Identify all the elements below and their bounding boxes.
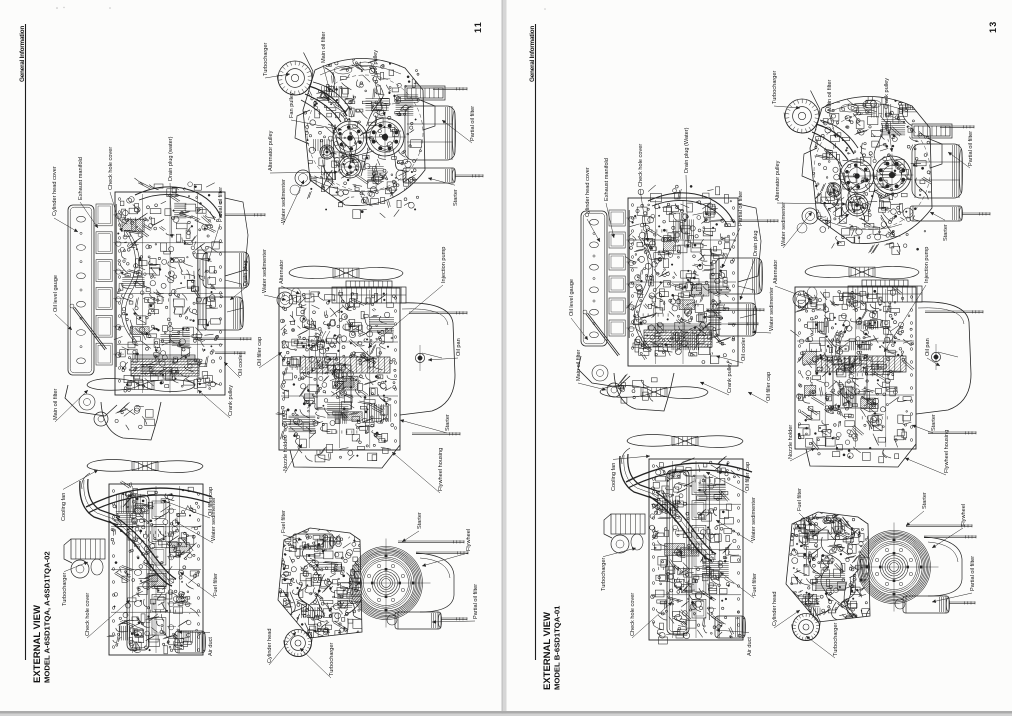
svg-text:Water sedimenter: Water sedimenter [281, 179, 287, 223]
svg-text:Air duct: Air duct [208, 637, 214, 656]
svg-text:Check hole cover: Check hole cover [638, 144, 644, 187]
svg-text:Crank pulley: Crank pulley [884, 78, 890, 109]
svg-text:Exhaust manifold: Exhaust manifold [78, 157, 84, 200]
svg-text:Starter: Starter [943, 224, 949, 241]
svg-text:Main oil filter: Main oil filter [53, 388, 59, 420]
svg-text:Cylinder head cover: Cylinder head cover [52, 166, 58, 216]
svg-text:Turbocharger: Turbocharger [772, 70, 778, 104]
svg-text:Water sedimenter: Water sedimenter [781, 202, 787, 246]
svg-text:Injection pump: Injection pump [924, 247, 930, 283]
svg-text:Exhaust manifold: Exhaust manifold [604, 158, 610, 201]
svg-text:13: 13 [988, 21, 998, 33]
svg-text:Oil pan: Oil pan [456, 338, 462, 356]
svg-text:Partial oil filter: Partial oil filter [218, 187, 224, 222]
svg-text:Oil cooler: Oil cooler [238, 352, 244, 376]
svg-text:Nozzle holder: Nozzle holder [788, 425, 794, 459]
svg-text:Flywheel housing: Flywheel housing [944, 430, 950, 473]
svg-text:Alternator: Alternator [773, 260, 779, 284]
svg-text:Injection pump: Injection pump [441, 247, 447, 283]
svg-text:Main oil filter: Main oil filter [576, 349, 582, 381]
svg-text:Crank pulley: Crank pulley [228, 385, 234, 416]
svg-text:Main oil filter: Main oil filter [321, 31, 327, 63]
svg-text:Oil level gauge: Oil level gauge [53, 275, 59, 312]
svg-text:Oil level gauge: Oil level gauge [569, 279, 575, 316]
svg-text:Oil cooler: Oil cooler [741, 337, 747, 361]
svg-text:Crank pulley: Crank pulley [373, 50, 379, 81]
svg-text:Turbocharger: Turbocharger [601, 557, 607, 591]
svg-text:Partial oil filter: Partial oil filter [470, 106, 476, 141]
svg-text:Nozzle holder: Nozzle holder [283, 437, 289, 471]
svg-text:EXTERNAL VIEW: EXTERNAL VIEW [542, 612, 553, 690]
svg-text:Check hole cover: Check hole cover [85, 593, 91, 636]
svg-text:Partial oil filter: Partial oil filter [968, 131, 974, 166]
svg-text:EXTERNAL VIEW: EXTERNAL VIEW [32, 605, 43, 683]
svg-text:Check hole cover: Check hole cover [108, 147, 114, 190]
svg-text:Drain plug (Water): Drain plug (Water) [684, 127, 690, 173]
svg-text:Flywheel housing: Flywheel housing [438, 448, 444, 491]
svg-text:Turbocharger: Turbocharger [62, 572, 68, 606]
svg-text:Fuel filter: Fuel filter [213, 573, 219, 596]
svg-text:Drain plug: Drain plug [243, 261, 249, 287]
svg-text:Alternator pulley: Alternator pulley [268, 130, 274, 171]
svg-text:Starter: Starter [445, 414, 451, 431]
svg-text:Oil filler cap: Oil filler cap [745, 462, 751, 491]
svg-text:Alternator pulley: Alternator pulley [775, 160, 781, 201]
svg-text:Starter: Starter [453, 189, 459, 206]
svg-text:Alternator: Alternator [279, 260, 285, 284]
svg-text:Crank pulley: Crank pulley [727, 362, 733, 393]
svg-text:Air duct: Air duct [747, 637, 753, 656]
svg-text:MODEL A-6SD1TQA, A-6SD1TQA-02: MODEL A-6SD1TQA, A-6SD1TQA-02 [43, 551, 52, 683]
svg-text:Check hole cover: Check hole cover [630, 593, 636, 636]
svg-text:Oil pan: Oil pan [925, 338, 931, 356]
svg-text:MODEL B-6SD1TQA-01: MODEL B-6SD1TQA-01 [553, 605, 562, 690]
svg-text:Turbocharger: Turbocharger [263, 42, 269, 76]
svg-text:Partial oil filter: Partial oil filter [738, 191, 744, 226]
svg-text:Cylinder head cover: Cylinder head cover [585, 167, 591, 217]
svg-text:Drain plug (water): Drain plug (water) [168, 136, 174, 181]
svg-text:Water sedimenter: Water sedimenter [262, 249, 268, 293]
svg-text:Main oil filter: Main oil filter [827, 79, 833, 111]
svg-text:Fan pulley: Fan pulley [289, 92, 295, 118]
svg-text:Cooling fan: Cooling fan [61, 493, 67, 521]
svg-text:Oil filler cap: Oil filler cap [766, 372, 772, 401]
svg-text:Water sedimenter: Water sedimenter [211, 497, 217, 541]
svg-text:Starter: Starter [931, 414, 937, 431]
svg-text:Water sedimenter: Water sedimenter [769, 287, 775, 331]
svg-text:11: 11 [473, 21, 483, 33]
svg-text:Drain plug: Drain plug [753, 231, 759, 257]
svg-text:Cooling fan: Cooling fan [611, 463, 617, 491]
svg-text:Fuel filter: Fuel filter [752, 573, 758, 596]
svg-text:Oil filler cap: Oil filler cap [257, 337, 263, 366]
svg-text:Water sedimenter: Water sedimenter [751, 497, 757, 541]
